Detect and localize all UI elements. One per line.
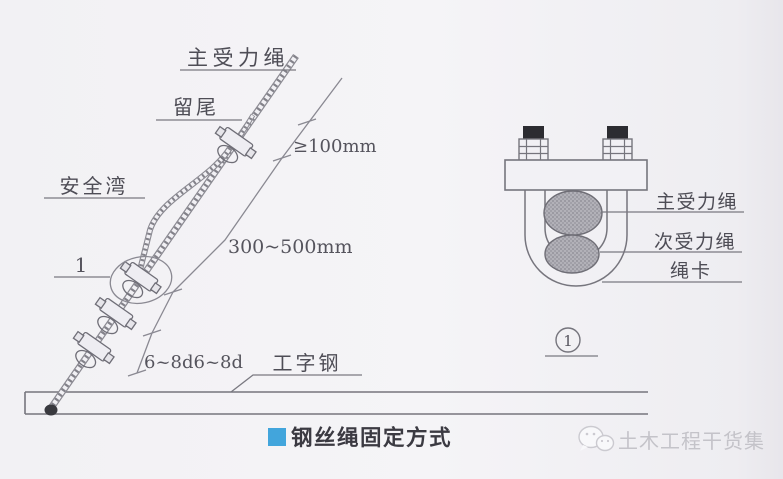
label-tail: 留尾 bbox=[156, 96, 242, 120]
wechat-chat-bubbles-icon bbox=[579, 427, 614, 452]
rope-clip-bottom bbox=[64, 328, 117, 377]
label-detail-main-rope-text: 主受力绳 bbox=[656, 191, 738, 213]
right-figure-clamp-detail: 主受力绳 次受力绳 绳卡 1 bbox=[505, 126, 744, 356]
label-detail-ref-1-text: 1 bbox=[75, 253, 88, 277]
label-rope-clamp: 绳卡 bbox=[602, 260, 742, 282]
label-i-beam: 工字钢 bbox=[231, 352, 362, 392]
label-safety-loop-text: 安全湾 bbox=[60, 175, 129, 198]
dimension-tail-min-length: ≥100mm bbox=[293, 136, 377, 157]
label-detail-ref-1: 1 bbox=[54, 253, 110, 277]
clamp-saddle-plate bbox=[505, 160, 647, 190]
caption: 钢丝绳固定方式 bbox=[268, 425, 452, 450]
secondary-rope-section bbox=[545, 235, 599, 273]
detail-mark-circled-1: 1 bbox=[545, 328, 598, 356]
label-i-beam-text: 工字钢 bbox=[273, 352, 342, 375]
label-detail-secondary-rope: 次受力绳 bbox=[600, 231, 742, 253]
label-detail-main-rope: 主受力绳 bbox=[601, 191, 744, 213]
i-beam bbox=[25, 392, 648, 414]
detail-mark-number: 1 bbox=[563, 332, 573, 350]
main-rope-section bbox=[544, 191, 602, 235]
clamp-bolt-right bbox=[603, 126, 632, 161]
label-rope-clamp-text: 绳卡 bbox=[670, 260, 712, 282]
scanned-diagram-page: 主受力绳 留尾 安全湾 1 ≥100mm 300~500mm 6~8d6~8d … bbox=[0, 0, 783, 479]
watermark-text: 土木工程干货集 bbox=[618, 430, 765, 453]
label-tail-text: 留尾 bbox=[173, 96, 219, 119]
rope-clip-middle bbox=[86, 294, 139, 343]
wire-rope-fixing-diagram: 主受力绳 留尾 安全湾 1 ≥100mm 300~500mm 6~8d6~8d … bbox=[0, 0, 783, 479]
dimension-loop-length: 300~500mm bbox=[228, 236, 352, 258]
dimension-line bbox=[128, 78, 342, 376]
clamp-bolt-left bbox=[519, 126, 548, 161]
label-main-rope-text: 主受力绳 bbox=[187, 46, 289, 70]
watermark: 土木工程干货集 bbox=[579, 427, 765, 454]
label-safety-loop: 安全湾 bbox=[44, 175, 145, 198]
rope-end-dot bbox=[45, 405, 58, 416]
dimension-clamp-spacing: 6~8d6~8d bbox=[144, 352, 243, 373]
caption-title: 钢丝绳固定方式 bbox=[291, 425, 452, 450]
blue-square-bullet-icon bbox=[268, 428, 286, 446]
label-main-rope: 主受力绳 bbox=[180, 46, 296, 70]
label-detail-secondary-rope-text: 次受力绳 bbox=[654, 231, 736, 253]
